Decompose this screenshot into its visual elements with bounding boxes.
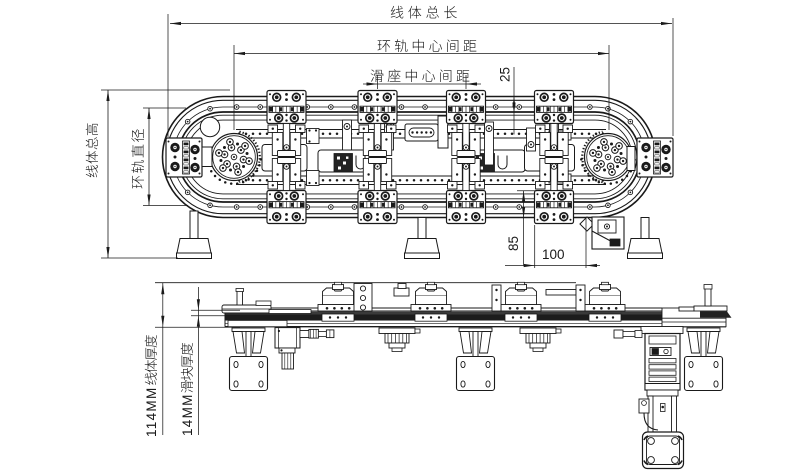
svg-text:114MM: 114MM — [144, 386, 159, 437]
svg-text:14MM: 14MM — [180, 393, 195, 436]
svg-text:25: 25 — [498, 67, 513, 82]
svg-text:100: 100 — [542, 247, 565, 262]
svg-text:85: 85 — [506, 236, 521, 251]
